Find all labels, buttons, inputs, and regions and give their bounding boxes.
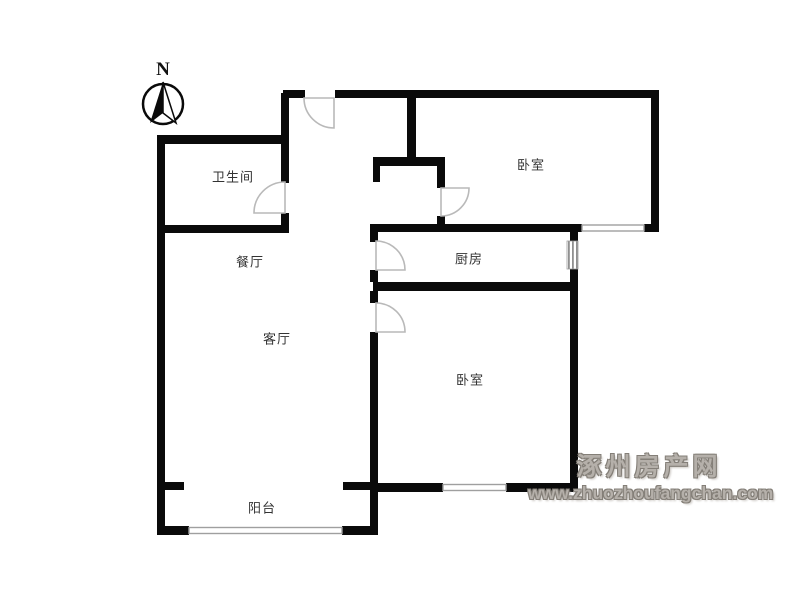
compass-north-label: N <box>156 59 170 81</box>
wall-bottom-right-corner <box>342 526 378 535</box>
window-bedroom-top <box>582 225 644 231</box>
wall-bathroom-bottom <box>157 225 289 233</box>
wall-bedroomtop-south-corner <box>644 224 659 232</box>
room-label-bathroom: 卫生间 <box>212 167 254 186</box>
door-entry <box>304 98 334 128</box>
wall-nook-left-stub <box>373 166 380 182</box>
wall-hall-divider <box>407 98 416 157</box>
window-balcony <box>189 528 342 534</box>
room-label-dining: 餐厅 <box>236 252 264 271</box>
wall-bedroomtop-south <box>370 224 582 232</box>
wall-right-outer <box>651 90 659 232</box>
wall-top-left-stub <box>283 90 305 98</box>
wall-left-outer <box>157 135 165 535</box>
wall-nook-top <box>373 157 445 166</box>
wall-bottom-left-corner <box>157 526 189 535</box>
wall-bedroombottom-south-left <box>373 483 443 492</box>
wall-entry-left <box>281 93 289 141</box>
wall-nook-right-lower <box>437 216 445 225</box>
watermark-site-url: www.zhuozhoufangchan.com <box>528 484 770 503</box>
door-kitchen <box>376 241 405 270</box>
wall-divider-upper <box>370 291 378 303</box>
room-label-bedroom-top: 卧室 <box>517 155 545 174</box>
wall-divider-lower <box>370 332 378 535</box>
wall-kitchen-bottom <box>373 282 570 291</box>
room-label-kitchen: 厨房 <box>455 249 483 268</box>
wall-balcony-stub-right <box>343 482 378 490</box>
door-bedroom-top <box>441 188 469 216</box>
watermark: 涿州房产网 www.zhuozhoufangchan.com <box>528 454 770 503</box>
wall-kitchen-left-lower <box>370 270 378 282</box>
wall-bathroom-right-upper <box>281 143 289 183</box>
room-label-balcony: 阳台 <box>248 498 276 517</box>
north-compass-icon <box>143 82 183 124</box>
floorplan-canvas: N 卫生间 餐厅 客厅 厨房 卧室 卧室 阳台 涿州房产网 www.zhuozh… <box>0 0 800 600</box>
room-label-bedroom-bottom: 卧室 <box>456 370 484 389</box>
window-kitchen-hatch <box>567 241 578 269</box>
door-bathroom <box>254 182 285 213</box>
window-bedroom-bottom <box>443 485 506 491</box>
door-bedroom-bottom <box>376 303 405 332</box>
floorplan-drawing <box>0 0 800 600</box>
watermark-site-name: 涿州房产网 <box>528 454 770 482</box>
wall-top-main <box>335 90 659 98</box>
wall-nook-right-upper <box>437 166 445 188</box>
wall-balcony-stub-left <box>157 482 184 490</box>
room-label-living: 客厅 <box>263 329 291 348</box>
wall-bathroom-right-lower <box>281 213 289 225</box>
wall-bathroom-top <box>157 135 289 144</box>
